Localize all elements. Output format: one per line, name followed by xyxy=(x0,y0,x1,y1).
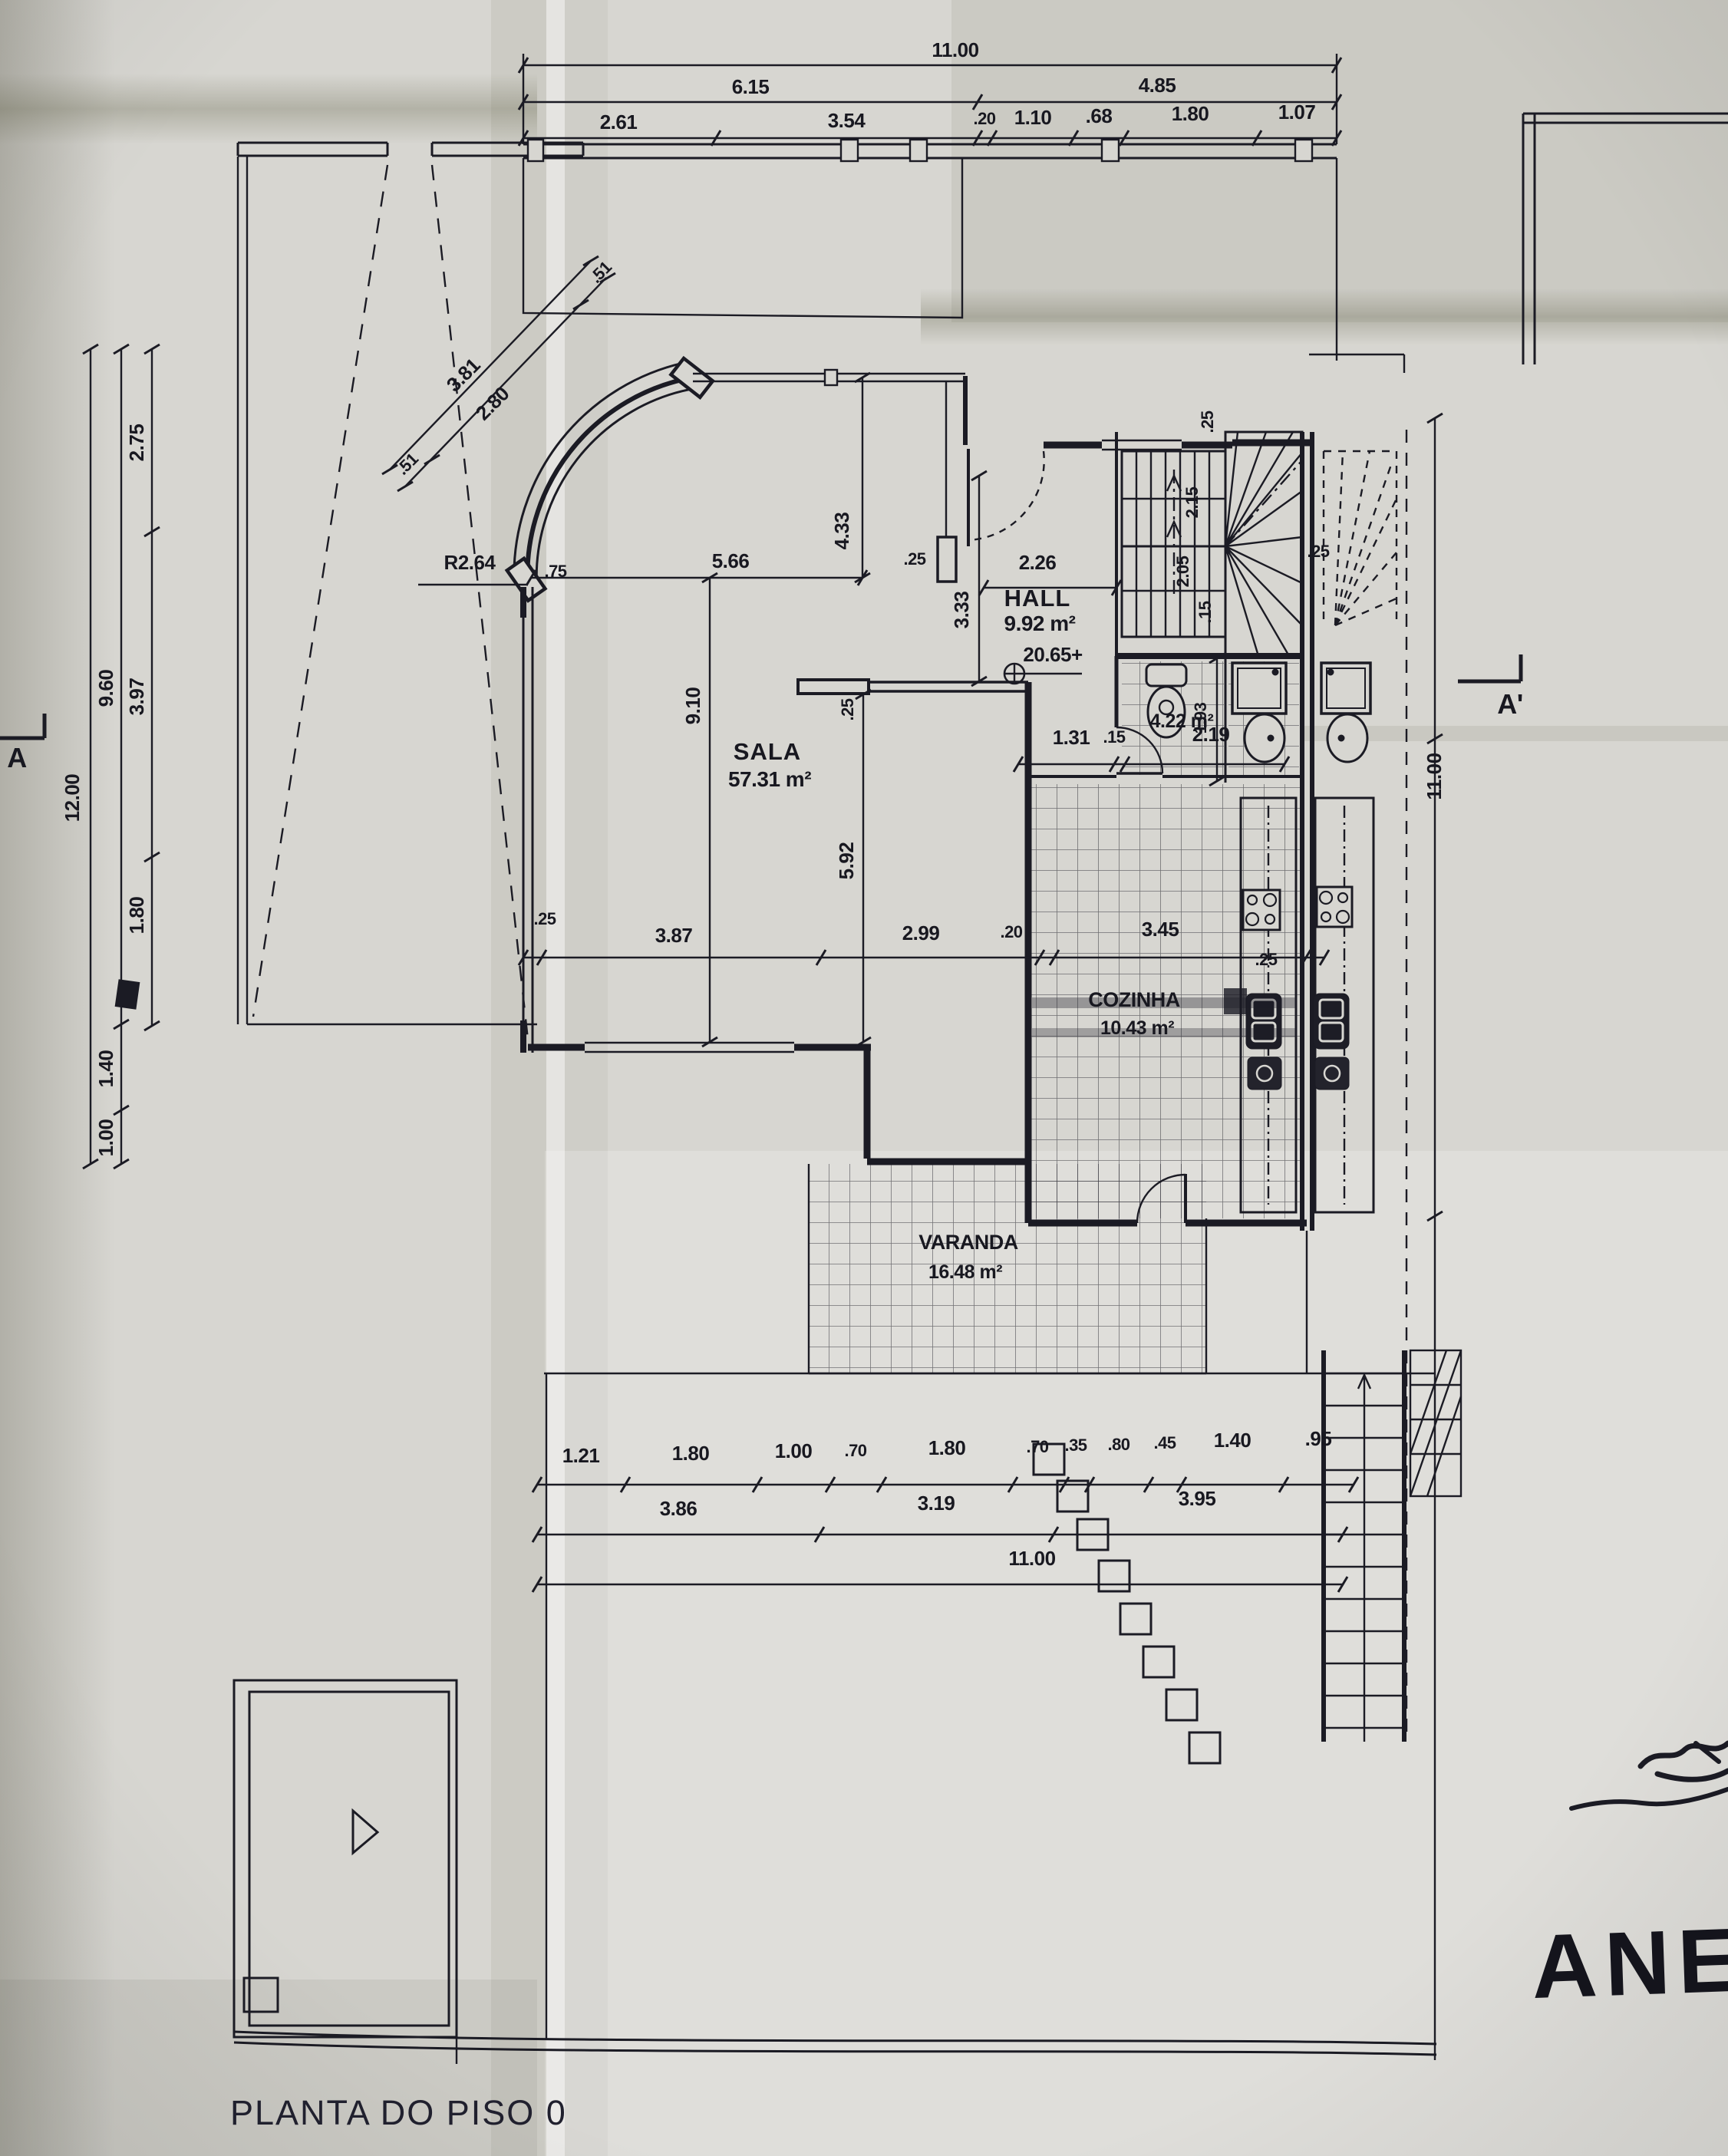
dim-left: 1.00 xyxy=(94,1119,117,1157)
room-area-cozinha: 10.43 m² xyxy=(1100,1017,1174,1039)
dim-diagonal: 3.81 xyxy=(442,354,485,397)
dim-bottom: 3.19 xyxy=(918,1492,955,1515)
dim-left-total: 12.00 xyxy=(61,774,84,823)
dim-right-total: 11.00 xyxy=(1423,753,1446,799)
dim-top: 1.80 xyxy=(1172,102,1209,125)
gate-marker xyxy=(115,979,140,1010)
dim-interior: 5.66 xyxy=(712,549,750,572)
dim-top: 6.15 xyxy=(732,75,770,98)
dim-bottom: 1.40 xyxy=(1214,1429,1251,1452)
room-name-varanda: VARANDA xyxy=(918,1231,1018,1254)
wash-basin xyxy=(1245,714,1284,762)
dim-bottom: .80 xyxy=(1107,1435,1129,1454)
drawing-title: PLANTA DO PISO 0 xyxy=(230,2093,567,2133)
dim-interior: .25 xyxy=(533,909,556,928)
dim-bottom: 1.80 xyxy=(928,1436,966,1459)
dim-bottom: .45 xyxy=(1153,1433,1176,1452)
room-name-cozinha: COZINHA xyxy=(1088,988,1180,1011)
dim-bottom: .70 xyxy=(1026,1437,1048,1456)
dim-top: 4.85 xyxy=(1139,74,1176,97)
level-mark: 20.65+ xyxy=(1023,643,1083,666)
dim-interior: .25 xyxy=(1307,542,1329,561)
section-marker-a-prime: A' xyxy=(1497,688,1523,720)
dim-interior: 2.26 xyxy=(1019,551,1057,574)
wash-basin-annex xyxy=(1327,714,1367,762)
dim-top: .20 xyxy=(973,109,995,128)
dim-left: 2.75 xyxy=(125,424,148,462)
shower-tray-annex xyxy=(1321,663,1370,714)
dim-stair: 2.15 xyxy=(1182,486,1202,518)
dim-radius: R2.64 xyxy=(444,551,496,574)
dim-interior: 3.33 xyxy=(950,592,973,629)
exterior-stair-upper-right xyxy=(1324,451,1397,625)
dim-top: 3.54 xyxy=(828,109,866,132)
dim-stair: .25 xyxy=(1198,410,1217,433)
dim-bottom: .95 xyxy=(1305,1427,1332,1450)
room-area-sala: 57.31 m² xyxy=(728,767,811,791)
dim-left: 3.97 xyxy=(125,678,148,716)
dim-top: 1.10 xyxy=(1014,106,1052,129)
scanned-floor-plan-photo: { "document": { "type": "architectural f… xyxy=(0,0,1728,2156)
dim-stair: 2.05 xyxy=(1173,555,1192,587)
section-marker-a: A xyxy=(7,742,27,773)
dim-bottom: 1.21 xyxy=(562,1444,600,1467)
dim-left: 1.80 xyxy=(125,897,148,935)
dim-bottom: 1.80 xyxy=(672,1442,710,1465)
dim-interior: .15 xyxy=(1103,727,1125,747)
room-name-sala: SALA xyxy=(734,738,801,765)
dim-interior: 2.19 xyxy=(1192,723,1230,746)
kitchen-sink-unit-annex xyxy=(1314,994,1349,1049)
dim-interior: .75 xyxy=(544,562,566,581)
dim-interior: .25 xyxy=(838,698,857,720)
dim-interior: 3.45 xyxy=(1142,918,1179,941)
dim-top: .68 xyxy=(1086,104,1113,127)
dim-top: 2.61 xyxy=(600,110,638,134)
dim-top-total: 11.00 xyxy=(932,38,978,61)
level-mark-symbol xyxy=(1004,664,1082,684)
dim-top: 1.07 xyxy=(1278,101,1316,124)
dim-interior: 4.33 xyxy=(830,513,853,550)
dim-interior: 1.31 xyxy=(1053,726,1090,749)
floor-plan-drawing: 11.006.154.852.613.54.201.10.681.801.071… xyxy=(0,0,1728,2156)
stove-4-burner xyxy=(1243,890,1280,930)
dim-interior: .20 xyxy=(1000,922,1022,941)
dim-stair: .15 xyxy=(1195,601,1215,623)
dim-bottom: .70 xyxy=(844,1441,866,1460)
dim-left: 1.40 xyxy=(94,1050,117,1088)
dim-left: 9.60 xyxy=(94,670,117,707)
dim-bottom: 3.86 xyxy=(660,1497,697,1520)
dim-interior: 3.87 xyxy=(655,924,693,947)
shower-tray xyxy=(1232,663,1286,714)
annex-handwritten-note: ANEXO xyxy=(1530,1903,1728,2019)
stove-4-burner-annex xyxy=(1317,887,1352,927)
dim-bottom: 1.00 xyxy=(775,1439,813,1462)
wall-stub xyxy=(798,680,869,694)
dim-interior: 9.10 xyxy=(681,687,704,725)
dim-interior: 5.92 xyxy=(835,842,858,880)
dim-interior: .25 xyxy=(1255,950,1277,969)
direction-triangle xyxy=(353,1811,378,1853)
room-area-varanda: 16.48 m² xyxy=(928,1261,1002,1283)
room-area-hall: 9.92 m² xyxy=(1004,612,1076,635)
veranda-floor-tiles xyxy=(809,1164,1206,1373)
dim-bottom: .35 xyxy=(1064,1436,1087,1455)
room-name-hall: HALL xyxy=(1004,585,1071,612)
dim-interior: 2.99 xyxy=(902,921,940,944)
dim-interior: .25 xyxy=(903,549,925,569)
dim-bottom: 3.95 xyxy=(1179,1487,1216,1510)
dim-bottom-total: 11.00 xyxy=(1008,1547,1055,1570)
